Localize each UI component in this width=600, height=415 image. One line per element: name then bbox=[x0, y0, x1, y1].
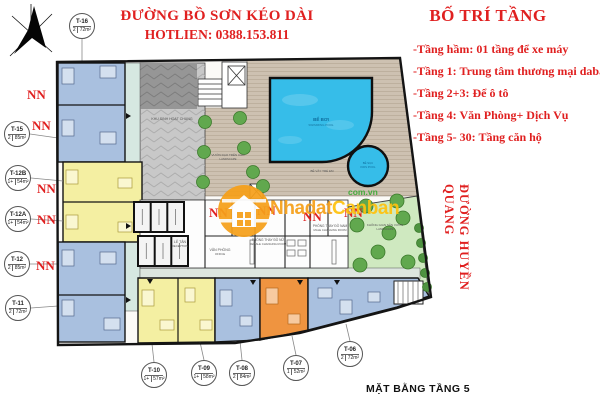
label-pool: BỂ BƠI bbox=[313, 116, 329, 122]
unit-id: T-15 bbox=[8, 127, 27, 135]
unit-badge-t-16: T-16272m² bbox=[69, 13, 95, 39]
legend-item-5: -Tầng 5- 30: Tầng căn hộ bbox=[413, 130, 542, 145]
unit-specs: 1+54m² bbox=[7, 220, 28, 227]
unit-specs: 285m² bbox=[8, 135, 26, 142]
unit-badge-t-12b: T-12B1+54m² bbox=[5, 165, 31, 191]
unit-badge-t-06: T-06272m² bbox=[337, 341, 363, 367]
label-deck-garden-en: LANDSCAPE bbox=[220, 157, 237, 161]
unit-badge-t-15: T-15285m² bbox=[4, 121, 30, 147]
unit-specs: 272m² bbox=[341, 355, 359, 362]
watermark-part1: Nhadat bbox=[270, 198, 332, 219]
nn-label-2: NN bbox=[32, 119, 51, 132]
label-wading-pool: BỂ VẦY TRẺ EM bbox=[311, 168, 334, 173]
watermark-house-icon bbox=[218, 185, 270, 237]
unit-badge-t-10: T-101+57m² bbox=[141, 362, 167, 388]
unit-specs: 284m² bbox=[233, 374, 251, 381]
watermark-domain: com.vn bbox=[348, 187, 378, 197]
unit-specs: 272m² bbox=[9, 309, 27, 316]
floorplan-poster: KHU SINH HOẠT CHUNG VƯỜN DẠO TRÊN CAO LA… bbox=[0, 0, 600, 415]
unit-id: T-08 bbox=[233, 366, 252, 374]
unit-badge-t-12a: T-12A1+54m² bbox=[5, 206, 31, 232]
plan-caption: MẶT BẰNG TẦNG 5 bbox=[366, 383, 470, 395]
legend-item-1: -Tầng hầm: 01 tầng để xe máy bbox=[413, 42, 568, 57]
watermark: NhadatCanban com.vn bbox=[218, 182, 398, 240]
street-name-right: ĐƯỜNG HUYỀN QUANG bbox=[441, 184, 471, 334]
unit-badge-t-07: T-07152m² bbox=[283, 355, 309, 381]
unit-badge-t-08: T-08284m² bbox=[229, 360, 255, 386]
legend-item-2: -Tầng 1: Trung tâm thương mại dabaco bbox=[413, 64, 600, 79]
unit-id: T-09 bbox=[195, 366, 214, 374]
label-community: KHU SINH HOẠT CHUNG bbox=[151, 117, 192, 121]
unit-specs: 1+58m² bbox=[193, 374, 214, 381]
nn-label-5: NN bbox=[36, 259, 55, 272]
unit-specs: 272m² bbox=[73, 27, 91, 34]
legend-title: BỐ TRÍ TẦNG bbox=[408, 6, 568, 26]
unit-specs: 152m² bbox=[287, 369, 305, 376]
elevator-bank-1 bbox=[134, 202, 184, 232]
label-changing-female-en: FEMALE CHANGING ROOM bbox=[250, 242, 287, 246]
nn-label-4: NN bbox=[37, 213, 56, 226]
unit-id: T-12 bbox=[8, 257, 27, 265]
north-arrow-icon bbox=[4, 2, 58, 62]
unit-badge-t-11: T-11272m² bbox=[5, 295, 31, 321]
unit-id: T-11 bbox=[9, 301, 28, 309]
label-kids-pool-en: KIDS POOL bbox=[360, 165, 376, 169]
unit-id: T-12A bbox=[9, 212, 28, 220]
unit-specs: 285m² bbox=[8, 265, 26, 272]
unit-badge-t-09: T-091+58m² bbox=[191, 360, 217, 386]
unit-id: T-07 bbox=[287, 361, 306, 369]
legend-item-3: -Tầng 2+3: Để ô tô bbox=[413, 86, 509, 101]
unit-id: T-12B bbox=[9, 171, 28, 179]
legend-item-4: -Tầng 4: Văn Phòng+ Dịch Vụ bbox=[413, 108, 568, 123]
communal-area bbox=[140, 63, 205, 200]
unit-specs: 1+57m² bbox=[143, 376, 164, 383]
unit-id: T-16 bbox=[73, 19, 92, 27]
label-pool-en: SWIMMING POOL bbox=[308, 123, 333, 127]
label-office-en: OFFICE bbox=[215, 252, 225, 256]
watermark-part2: Canban bbox=[332, 198, 399, 219]
unit-specs: 1+54m² bbox=[7, 179, 28, 186]
unit-id: T-06 bbox=[341, 347, 360, 355]
street-name-top: ĐƯỜNG BỒ SƠN KÉO DÀI bbox=[102, 8, 332, 25]
watermark-text: NhadatCanban bbox=[270, 198, 399, 220]
nn-label-1: NN bbox=[27, 88, 46, 101]
unit-badge-t-12: T-12285m² bbox=[4, 251, 30, 277]
unit-id: T-10 bbox=[145, 368, 164, 376]
label-reception-en: RECEPTION bbox=[172, 244, 188, 248]
hotline: HOTLIEN: 0388.153.811 bbox=[102, 27, 332, 43]
nn-label-3: NN bbox=[37, 182, 56, 195]
